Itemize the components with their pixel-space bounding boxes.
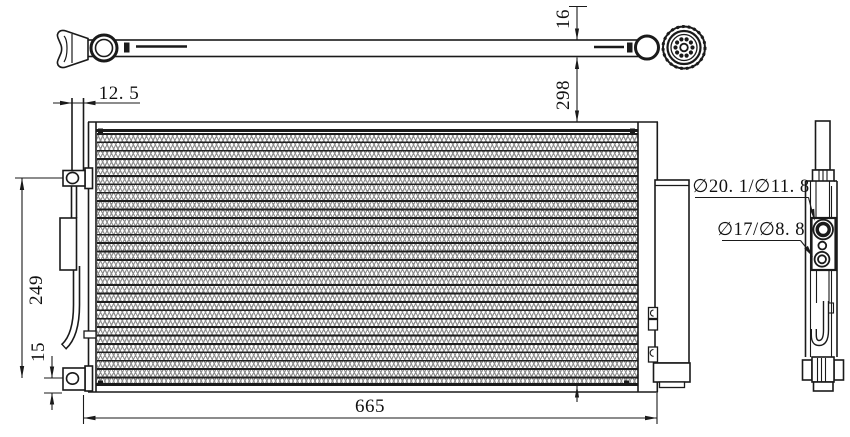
left-fitting-claw [57, 30, 88, 67]
receiver-drier [649, 180, 691, 388]
mounting-bracket-upper [63, 168, 93, 189]
label-port-upper: ∅20. 1/∅11. 8 [692, 176, 809, 198]
right-ring-fitting [636, 36, 659, 59]
dim-foot-offset: 15 [28, 342, 50, 362]
mounting-bracket-lower [63, 366, 93, 391]
dim-core-width: 665 [355, 396, 385, 418]
dim-tube-depth: 16 [553, 9, 575, 29]
knurled-cap [663, 27, 705, 69]
drawing-sheet: 12. 5 16 298 249 15 665 ∅20. 1/∅11. 8 ∅1… [0, 0, 850, 437]
port-block [812, 218, 836, 270]
inlet-pipe-left [60, 98, 96, 349]
dimension-lines [15, 7, 815, 425]
side-view [803, 121, 844, 391]
label-port-lower: ∅17/∅8. 8 [717, 219, 805, 241]
side-bottom-bracket [803, 357, 844, 391]
dim-inlet-drop: 298 [553, 80, 575, 110]
dim-bracket-span: 249 [26, 275, 48, 305]
dim-header-offset: 12. 5 [99, 83, 140, 105]
front-view-outline [88, 122, 658, 392]
top-view [57, 27, 705, 69]
plate-weld-tabs [98, 129, 635, 386]
